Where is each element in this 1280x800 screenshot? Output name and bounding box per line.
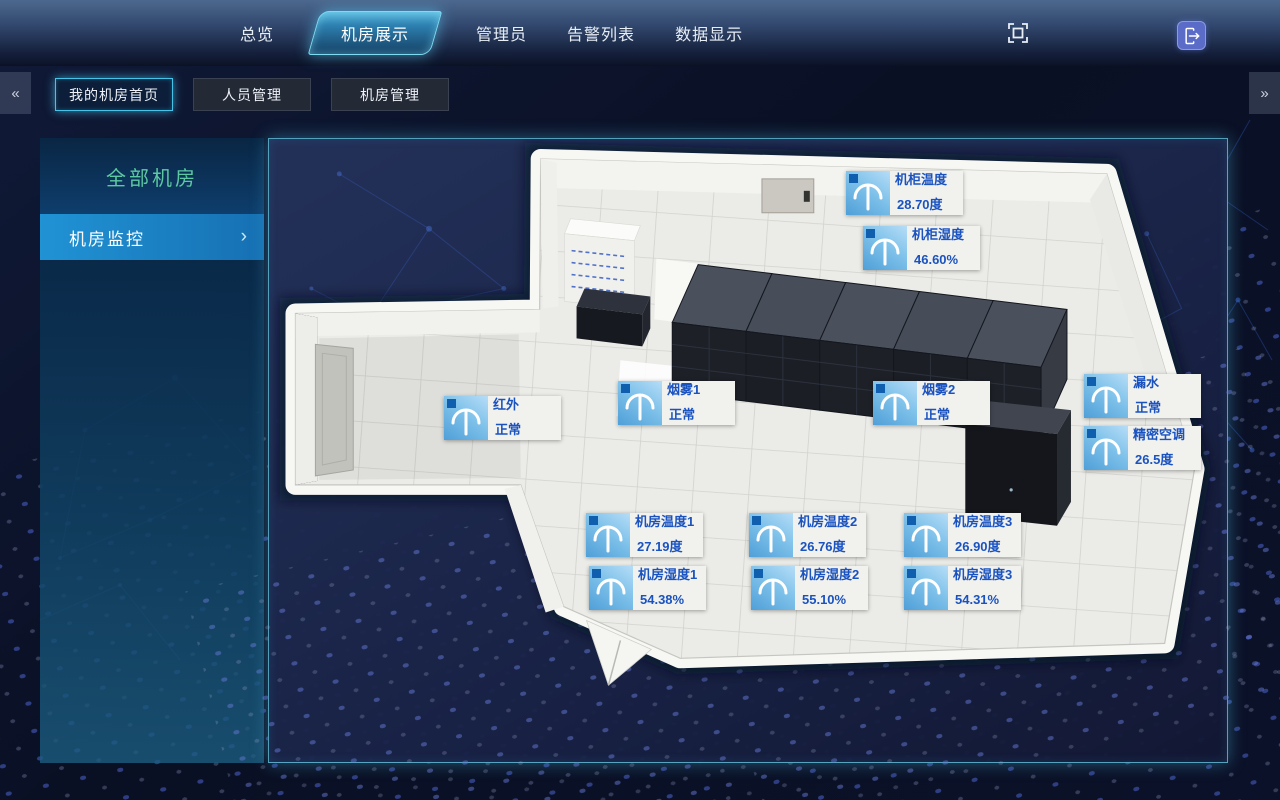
chevron-right-icon: › (241, 226, 249, 248)
gauge-icon (1084, 374, 1128, 418)
sensor-smoke-2[interactable]: 烟雾2正常 (873, 381, 990, 425)
sensor-precision-ac[interactable]: 精密空调26.5度 (1084, 426, 1201, 470)
logout-icon (1182, 26, 1202, 46)
sidebar-item-room-monitoring[interactable]: 机房监控 › (40, 214, 264, 260)
corner-marker (907, 569, 916, 578)
sensor-value: 27.19度 (635, 540, 699, 554)
logout-button[interactable] (1177, 21, 1206, 50)
fullscreen-button[interactable] (1006, 21, 1030, 45)
sensor-name: 烟雾2 (922, 383, 986, 397)
sidebar: 全部机房 机房监控 › (40, 138, 264, 763)
sensor-smoke-1[interactable]: 烟雾1正常 (618, 381, 735, 425)
sensor-room-humidity-1[interactable]: 机房湿度154.38% (589, 566, 706, 610)
sensor-name: 机房湿度2 (800, 568, 864, 582)
gauge-icon (863, 226, 907, 270)
corner-marker (907, 516, 916, 525)
sensor-value: 26.5度 (1133, 453, 1197, 467)
gauge-icon (904, 566, 948, 610)
sensor-name: 机房湿度3 (953, 568, 1017, 582)
sensor-value: 26.90度 (953, 540, 1017, 554)
sensor-cabinet-humidity[interactable]: 机柜湿度46.60% (863, 226, 980, 270)
tab-my-room-home[interactable]: 我的机房首页 (55, 78, 173, 111)
sensor-value: 正常 (922, 408, 986, 422)
sensor-value: 26.76度 (798, 540, 862, 554)
sensor-infrared[interactable]: 红外正常 (444, 396, 561, 440)
nav-item-administrator[interactable]: 管理员 (476, 21, 527, 45)
sensor-value: 28.70度 (895, 198, 959, 212)
corner-marker (1087, 429, 1096, 438)
sensor-value: 46.60% (912, 253, 976, 267)
sensor-name: 机房温度3 (953, 515, 1017, 529)
gauge-icon (904, 513, 948, 557)
active-nav-tab-label: 机房展示 (341, 21, 409, 45)
tab-room-management[interactable]: 机房管理 (331, 78, 449, 111)
sensor-value: 正常 (1133, 401, 1197, 415)
fullscreen-icon (1006, 21, 1030, 45)
gauge-icon (1084, 426, 1128, 470)
screen: 总览 机房展示 管理员 告警列表 数据显示 (0, 0, 1280, 800)
corner-marker (754, 569, 763, 578)
sensor-water-leak[interactable]: 漏水正常 (1084, 374, 1201, 418)
workspace-tabs: 我的机房首页 人员管理 机房管理 (55, 78, 449, 111)
sensor-value: 54.31% (953, 593, 1017, 607)
sensor-room-temperature-3[interactable]: 机房温度326.90度 (904, 513, 1021, 557)
sensor-room-humidity-2[interactable]: 机房湿度255.10% (751, 566, 868, 610)
corner-marker (447, 399, 456, 408)
nav-item-data-display[interactable]: 数据显示 (675, 21, 743, 45)
top-nav-bar: 总览 机房展示 管理员 告警列表 数据显示 (0, 0, 1280, 66)
gauge-icon (846, 171, 890, 215)
sensor-room-humidity-3[interactable]: 机房湿度354.31% (904, 566, 1021, 610)
corner-marker (866, 229, 875, 238)
sensor-name: 机柜湿度 (912, 228, 976, 242)
nav-item-alarm-list[interactable]: 告警列表 (567, 21, 635, 45)
sensor-room-temperature-2[interactable]: 机房温度226.76度 (749, 513, 866, 557)
tab-personnel-management[interactable]: 人员管理 (193, 78, 311, 111)
sensor-name: 红外 (493, 398, 557, 412)
gauge-icon (589, 566, 633, 610)
corner-marker (621, 384, 630, 393)
workspace-tab-bar: « 我的机房首页 人员管理 机房管理 » (0, 70, 1280, 122)
sidebar-header: 全部机房 (40, 138, 264, 214)
corner-marker (592, 569, 601, 578)
sensor-cabinet-temperature[interactable]: 机柜温度28.70度 (846, 171, 963, 215)
gauge-icon (444, 396, 488, 440)
corner-marker (589, 516, 598, 525)
sensor-name: 机房温度1 (635, 515, 699, 529)
sensor-name: 精密空调 (1133, 428, 1197, 442)
corner-marker (849, 174, 858, 183)
nav-item-room-display[interactable]: 机房展示 (314, 11, 436, 55)
sensor-name: 漏水 (1133, 376, 1197, 390)
sensor-value: 54.38% (638, 593, 702, 607)
gauge-icon (749, 513, 793, 557)
sidebar-title: 全部机房 (106, 162, 198, 191)
tab-scroll-right-button[interactable]: » (1249, 72, 1280, 114)
sensor-name: 机房温度2 (798, 515, 862, 529)
active-nav-tab-shape: 机房展示 (308, 11, 443, 55)
nav-item-overview[interactable]: 总览 (240, 21, 274, 45)
sensor-value: 55.10% (800, 593, 864, 607)
gauge-icon (618, 381, 662, 425)
sidebar-body (40, 260, 264, 763)
sensor-name: 机柜温度 (895, 173, 959, 187)
sidebar-item-label: 机房监控 (69, 225, 145, 250)
gauge-icon (873, 381, 917, 425)
gauge-icon (751, 566, 795, 610)
room-3d-panel: 机柜温度28.70度 机柜湿度46.60% 红外正常 烟雾1正常 烟雾2正常 (268, 138, 1228, 763)
gauge-icon (586, 513, 630, 557)
top-nav: 总览 机房展示 管理员 告警列表 数据显示 (240, 0, 743, 66)
sensor-room-temperature-1[interactable]: 机房温度127.19度 (586, 513, 703, 557)
sensor-name: 机房湿度1 (638, 568, 702, 582)
corner-marker (752, 516, 761, 525)
corner-marker (1087, 377, 1096, 386)
corner-marker (876, 384, 885, 393)
tab-scroll-left-button[interactable]: « (0, 72, 31, 114)
sensor-value: 正常 (493, 423, 557, 437)
sensor-name: 烟雾1 (667, 383, 731, 397)
sensor-value: 正常 (667, 408, 731, 422)
